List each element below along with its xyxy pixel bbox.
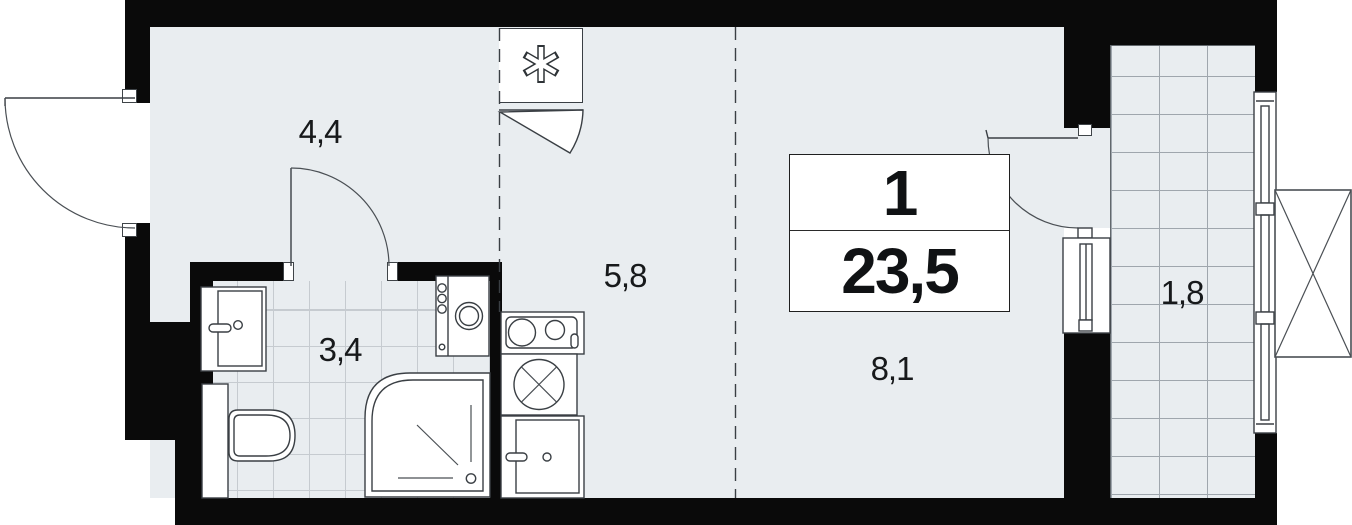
balcony-door-jamb-top	[1078, 124, 1092, 136]
entrance-door	[5, 98, 135, 228]
area-label-kitchen-zone: 5,8	[604, 257, 647, 295]
bathroom-door-jamb-left	[283, 262, 294, 281]
bathroom-doorway-floor	[293, 262, 387, 281]
unit-rooms-count: 1	[790, 155, 1009, 231]
area-label-balcony: 1,8	[1161, 274, 1204, 312]
wall-balcony-partition-upper	[1064, 27, 1110, 128]
entrance-door-jamb-top	[122, 89, 137, 103]
area-label-hallway: 4,4	[299, 113, 342, 151]
wall-left-lower	[125, 223, 150, 440]
wall-balcony-partition-lower	[1064, 332, 1110, 498]
wall-balcony-bottom-corner	[1255, 433, 1277, 500]
entrance-door-jamb-bottom	[122, 223, 137, 237]
wall-balcony-top	[1110, 27, 1255, 45]
wall-bathroom-top-left	[190, 262, 283, 281]
closet	[499, 28, 583, 103]
unit-info-box: 1 23,5	[789, 154, 1010, 312]
wall-bathroom-left	[190, 281, 213, 498]
floor-plan: 1 23,5 4,4 5,8 3,4 8,1 1,8	[0, 0, 1352, 525]
wall-bathroom-top-right	[397, 262, 502, 281]
unit-total-area: 23,5	[790, 231, 1009, 311]
balcony-window	[1063, 228, 1110, 333]
area-label-bathroom: 3,4	[319, 331, 362, 369]
balcony-floor	[1110, 45, 1255, 500]
wall-top	[125, 0, 1277, 27]
crossed-box	[1275, 190, 1351, 357]
bathroom-door-jamb-right	[387, 262, 398, 281]
wall-right-top-corner	[1255, 0, 1277, 92]
balcony-glazing	[1254, 92, 1276, 433]
wall-bathroom-right	[490, 281, 502, 498]
bathroom-floor	[213, 281, 490, 498]
area-label-living-zone: 8,1	[871, 350, 914, 388]
wall-left-mass	[150, 322, 195, 440]
balcony-doorway-floor	[1064, 128, 1110, 228]
wall-bottom	[175, 498, 1277, 525]
